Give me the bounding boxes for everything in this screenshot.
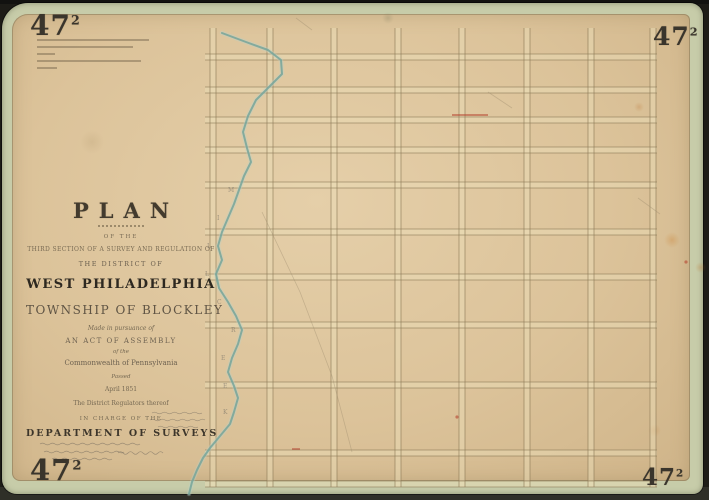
red-survey-dot (684, 260, 687, 263)
title-ofthe-line: of the (26, 349, 216, 355)
title-act-line: AN ACT OF ASSEMBLY (26, 337, 216, 345)
scanned-map-page: { "corner": { "number": "47", "sup": "2"… (0, 0, 709, 500)
old-road-line (638, 198, 660, 214)
stamp-line (37, 46, 133, 48)
plate-number-bottom-right: 472 (642, 466, 684, 489)
stamp-line (37, 67, 57, 69)
creek-label-letter: E (223, 383, 227, 390)
plate-number-top-left: 472 (30, 12, 81, 40)
stamp-line (37, 60, 141, 62)
creek-label-letter: E (221, 355, 225, 362)
title-block: PLAN OF THE THIRD SECTION OF A SURVEY AN… (26, 198, 216, 439)
title-west-philadelphia: WEST PHILADELPHIA (26, 277, 216, 292)
title-commonwealth-line: Commonwealth of Pennsylvania (26, 359, 216, 367)
title-in-charge-line: IN CHARGE OF THE (26, 416, 216, 422)
title-department-of-surveys: DEPARTMENT OF SURVEYS (26, 428, 216, 439)
plate-number-bottom-left: 472 (30, 456, 82, 485)
title-subline: OF THE (26, 234, 216, 240)
title-passed-line: Passed (26, 374, 216, 380)
handwritten-note (40, 443, 140, 445)
old-road-line (296, 18, 312, 30)
handwritten-signature (118, 452, 163, 455)
red-survey-dot (455, 415, 458, 418)
old-road-line (262, 212, 352, 452)
title-section-line: THIRD SECTION OF A SURVEY AND REGULATION… (26, 246, 216, 253)
stamp-line (37, 53, 55, 55)
map-title: PLAN (26, 198, 216, 223)
creek-label-letter: K (223, 409, 228, 416)
stamp-note-lines (37, 39, 167, 74)
old-road-line (488, 92, 512, 108)
plate-number-top-right: 472 (653, 24, 699, 49)
title-regulators-line: The District Regulators thereof (26, 400, 216, 407)
creek-label-letter: R (231, 327, 236, 334)
title-township-blockley: TOWNSHIP OF BLOCKLEY (26, 303, 216, 317)
creek-label-letter: I (217, 215, 220, 222)
title-pursuance-line: Made in pursuance of (26, 325, 216, 332)
title-flourish (98, 225, 144, 227)
stamp-line (37, 39, 149, 41)
title-district-line: THE DISTRICT OF (26, 260, 216, 268)
creek-label-letter: M (228, 187, 234, 194)
title-date-line: April 1851 (26, 386, 216, 393)
